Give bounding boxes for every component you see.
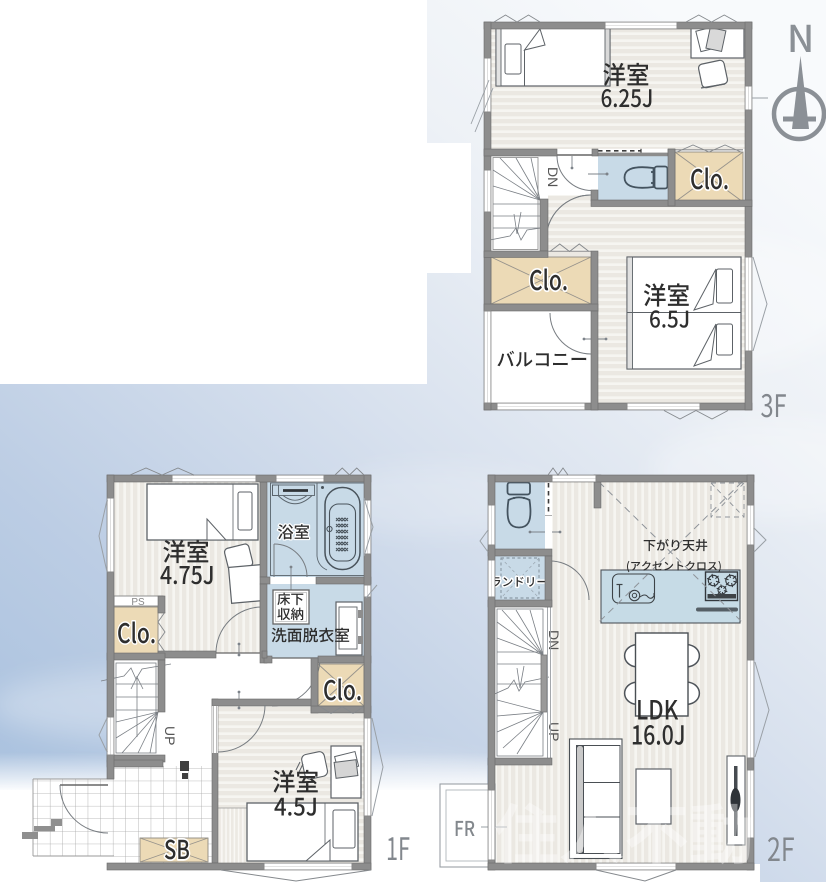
svg-text:UP: UP [162,726,178,745]
svg-text:DN: DN [545,167,561,187]
svg-text:DN: DN [546,630,562,650]
svg-text:UP: UP [546,722,562,741]
svg-text:PS: PS [131,597,145,608]
